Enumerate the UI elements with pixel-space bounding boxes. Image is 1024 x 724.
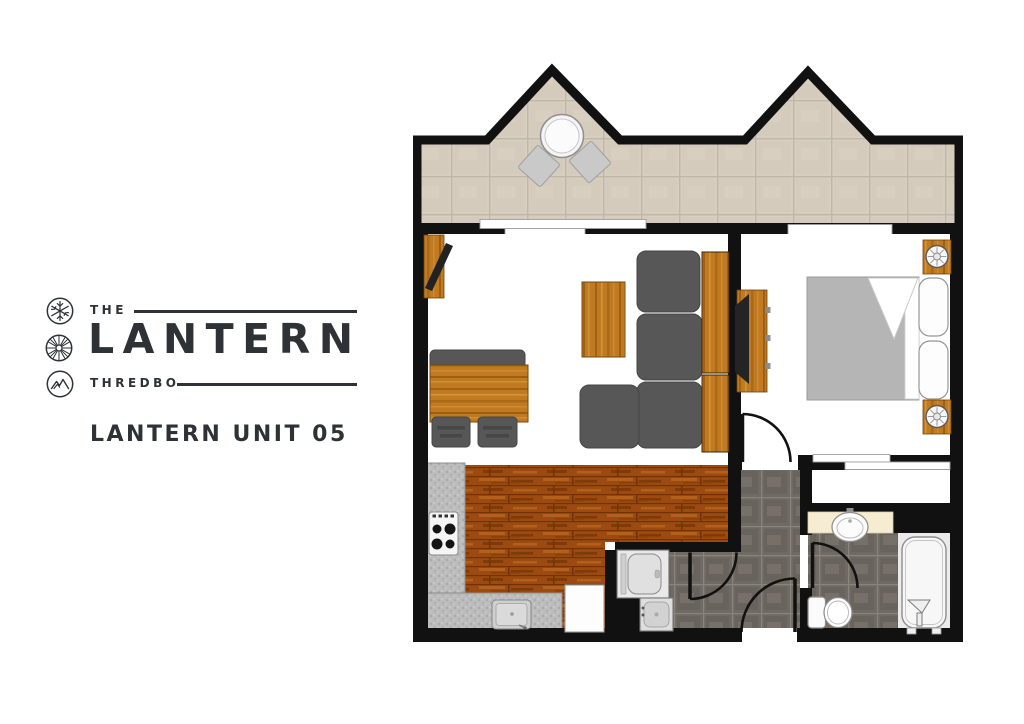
bedroom-south-window [813,455,890,463]
bedroom-south-window-panel [845,462,950,470]
laundry-west-wall [605,550,617,632]
panel-knob [766,335,771,341]
bedroom-tv-icon [735,294,749,384]
pillow [919,341,948,399]
dining-chair [432,417,470,447]
laundry-tub [640,598,673,631]
east-wall [950,225,963,642]
balcony-outline [417,70,959,232]
sideboard-lower [702,375,729,452]
nightstand-with-lamp [923,400,951,434]
floor-plan-page: THE LANTERN THREDBO LANTERN UNIT 05 [0,0,1024,724]
brand-name: LANTERN [88,319,362,360]
south-wall [413,628,963,642]
bathroom-north-wall [803,503,950,512]
dining-chair [478,417,517,447]
floor-plan [413,62,963,642]
panel-knob [766,363,771,369]
outdoor-table-top [545,119,579,153]
brand-logo: THE LANTERN THREDBO LANTERN UNIT 05 [40,280,385,465]
living-sliding-door [480,220,646,229]
cooktop [429,512,458,555]
balcony [417,70,959,232]
snowflake-icon [46,297,74,325]
unit-title: LANTERN UNIT 05 [90,422,348,447]
bedroom-window [788,225,892,235]
wheel-icon [45,334,73,362]
nightstand-with-lamp [923,240,951,274]
panel-knob [766,307,771,313]
brand-location: THREDBO [90,376,179,390]
sideboard [702,252,729,373]
brand-divider-bottom [177,383,357,386]
toilet [808,597,852,628]
washing-machine [617,550,669,598]
bathtub [902,537,946,634]
laundry-floor [668,550,740,628]
entry-opening [742,628,797,642]
kitchen-sink [492,600,531,630]
dining-table [430,365,528,422]
coffee-table [582,282,625,357]
mountain-icon [46,370,74,398]
pillow [919,278,948,336]
laundry-partition [617,597,640,632]
brand-divider-top [134,310,357,313]
bathroom-corner-wall [893,512,950,533]
fridge [565,585,604,632]
